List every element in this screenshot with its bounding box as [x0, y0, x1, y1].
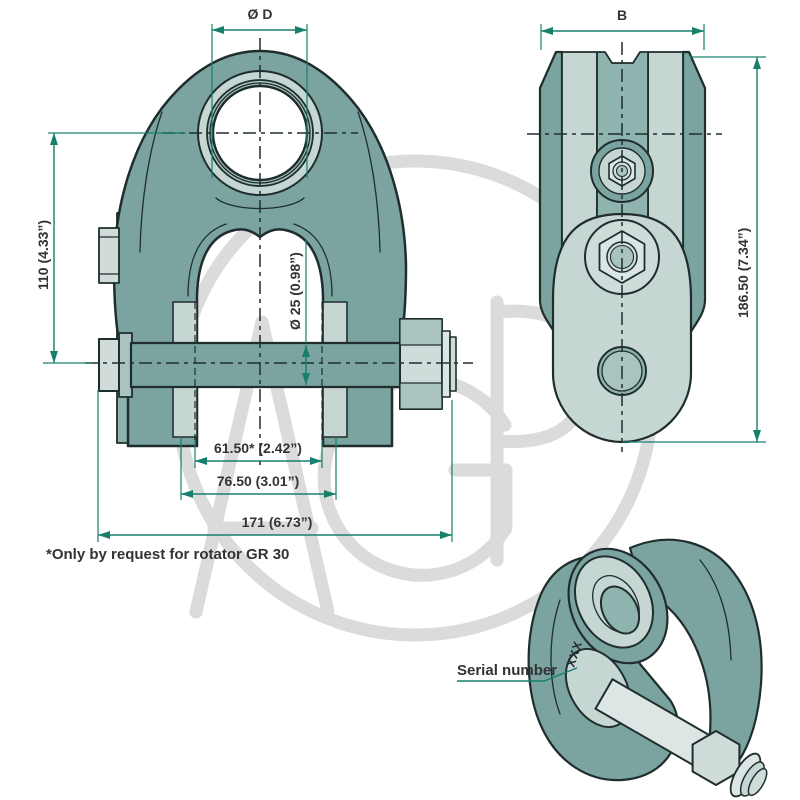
side-view	[527, 42, 722, 452]
dim-pin-diameter-label: Ø 25 (0.98”)	[287, 252, 303, 330]
pin	[99, 333, 402, 397]
technical-drawing: XXX Ø D 110 (4.33”) Ø 25 (0.98”) 61.50* …	[0, 0, 800, 800]
dim-height-186-label: 186.50 (7.34”)	[735, 228, 751, 318]
dim-bush-width-76-label: 76.50 (3.01”)	[217, 473, 300, 489]
dim-width-b-label: B	[617, 7, 627, 23]
dim-inner-width-61-label: 61.50* (2.42”)	[214, 440, 302, 456]
nut-washer	[442, 331, 450, 397]
plate-bolt	[99, 228, 119, 283]
dim-height-110-label: 110 (4.33”)	[35, 220, 51, 290]
dim-hole-diameter-label: Ø D	[248, 6, 273, 22]
dim-pin-length-171-label: 171 (6.73”)	[242, 514, 313, 530]
footnote: *Only by request for rotator GR 30	[46, 546, 289, 563]
serial-number-label: Serial number	[457, 662, 557, 679]
hex-nut	[400, 319, 456, 409]
pin-shaft	[131, 343, 402, 387]
pin-head	[99, 339, 119, 391]
pin-end-cap	[450, 337, 456, 391]
isometric-view: XXX	[529, 531, 775, 800]
